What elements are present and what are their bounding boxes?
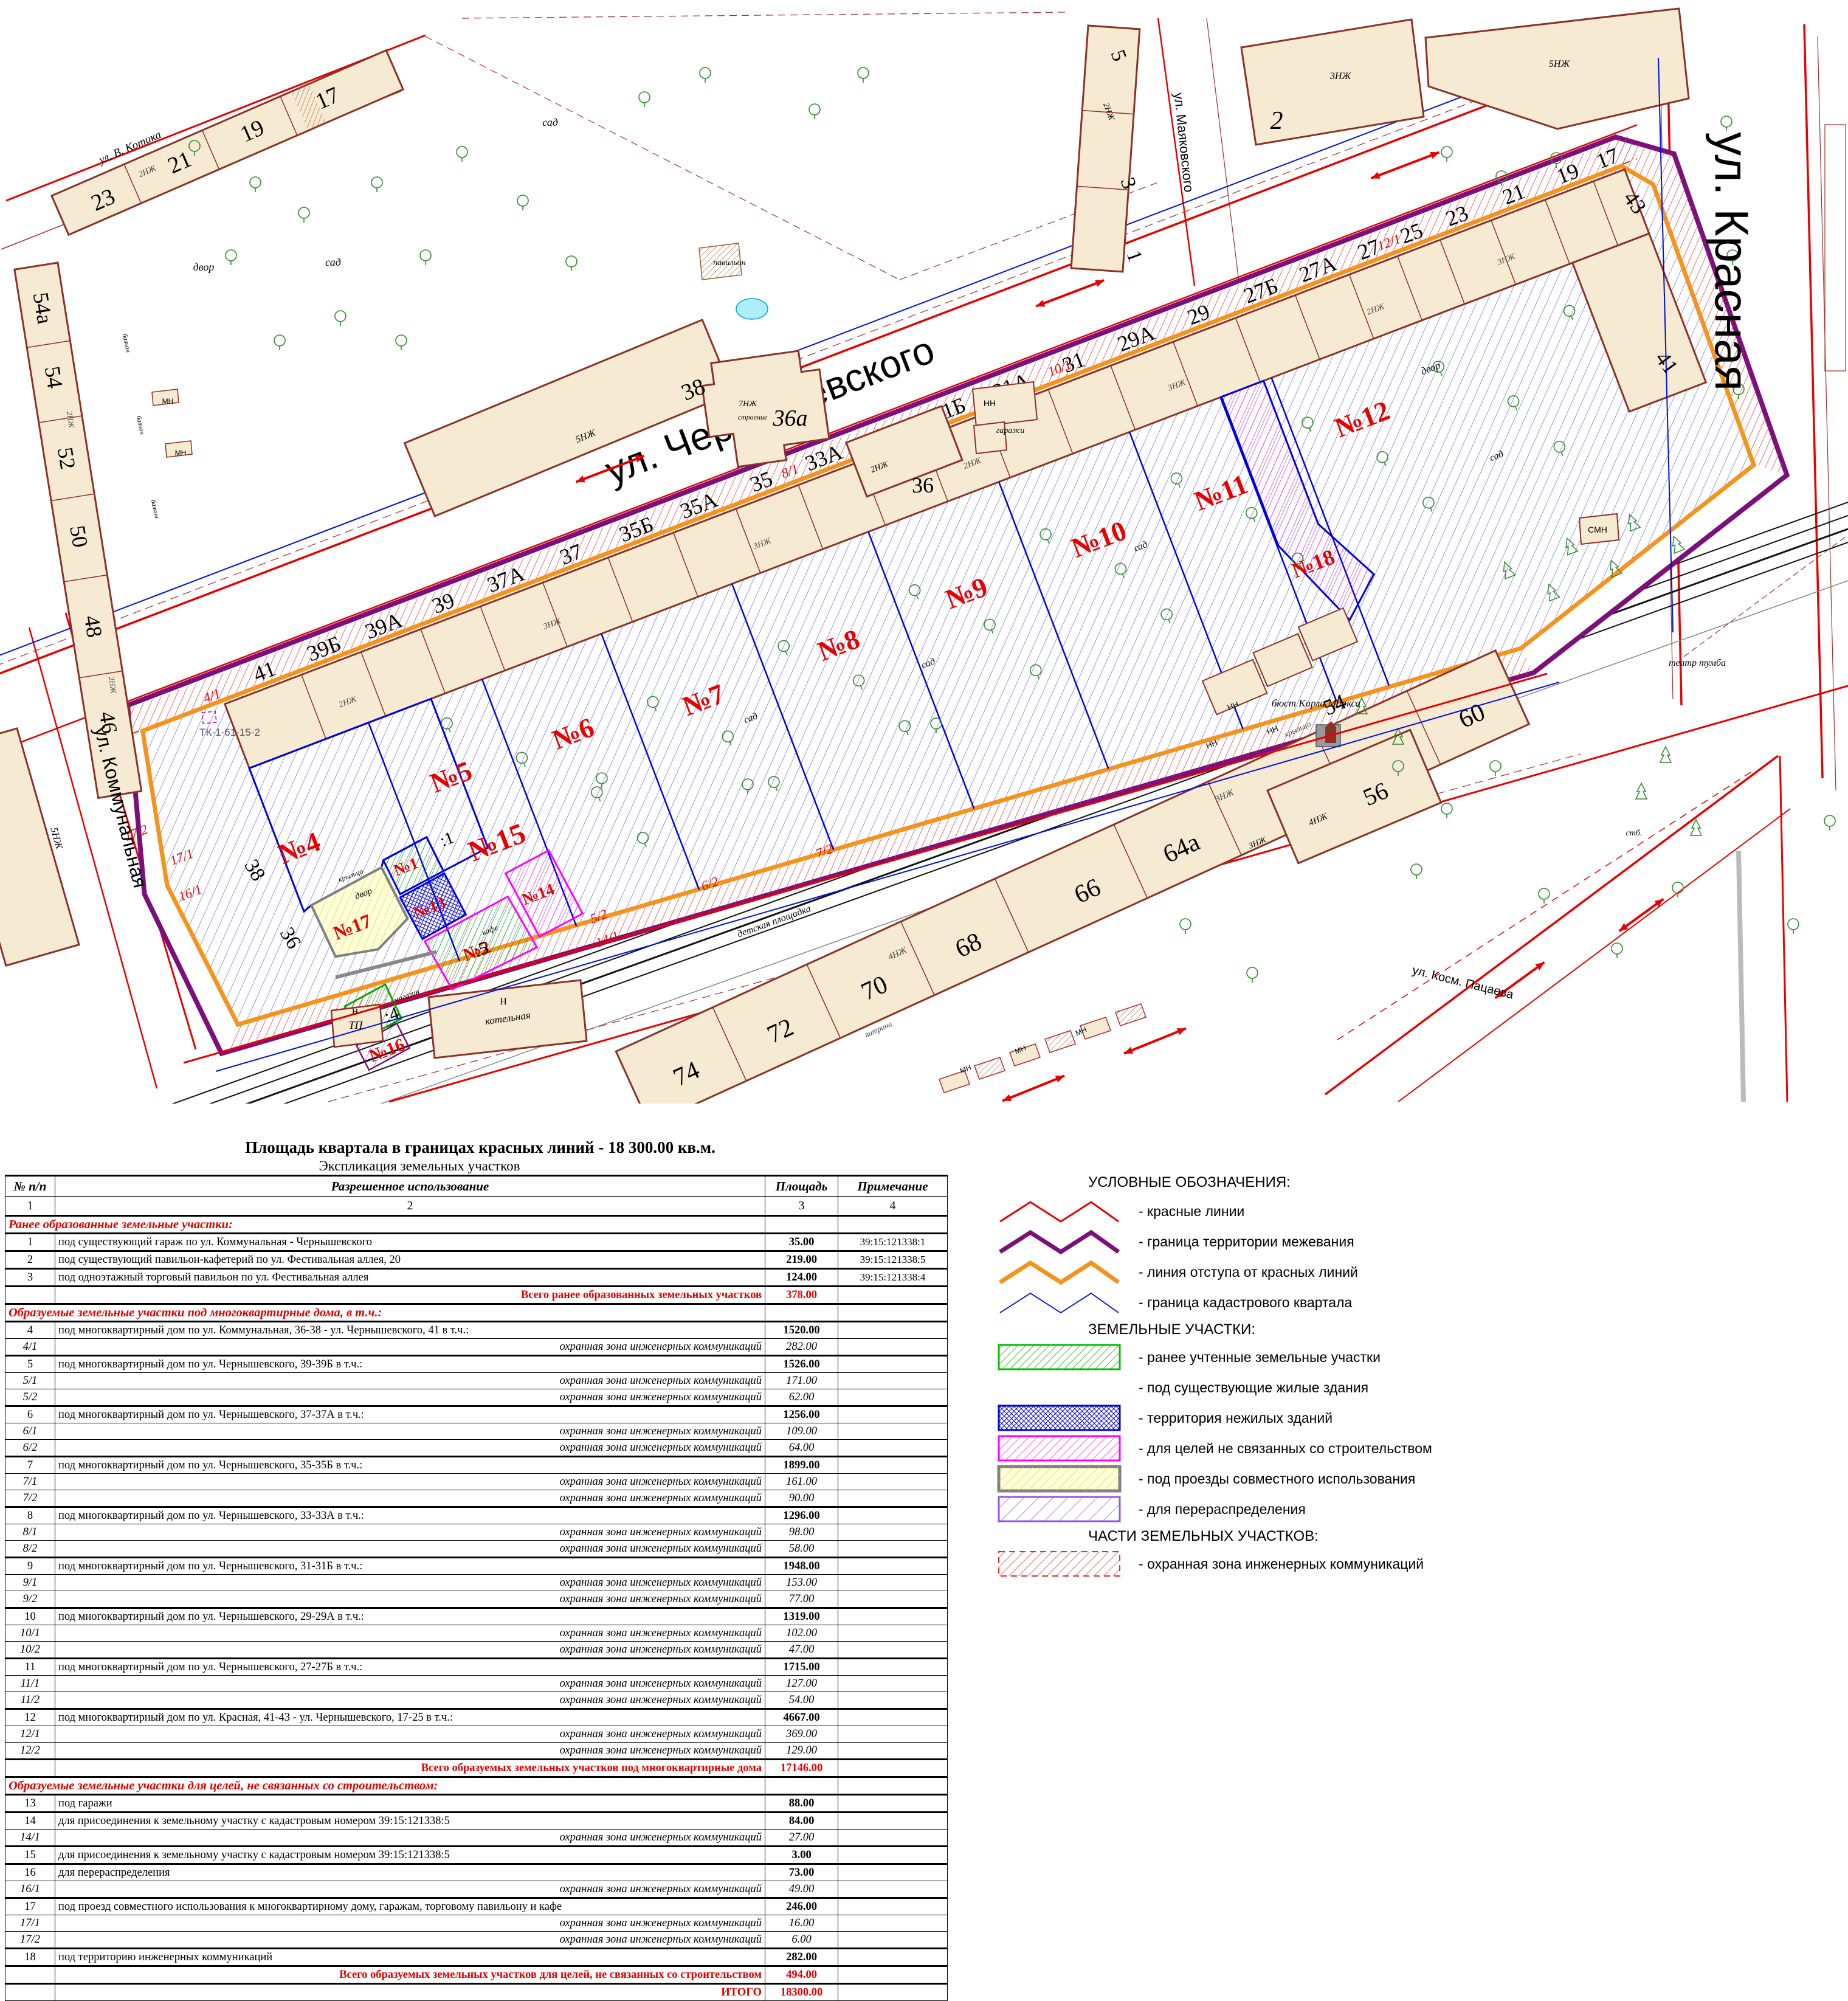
- map-shape: [1055, 1073, 1066, 1082]
- map-small-label: павильон: [713, 258, 746, 268]
- table-row: 9/1охранная зона инженерных коммуникаций…: [5, 1575, 948, 1591]
- map-shape: [1071, 26, 1140, 272]
- map-small-label: Н: [500, 997, 507, 1007]
- buildings-5-3-1: [1071, 26, 1140, 272]
- tree-icon: [298, 207, 309, 223]
- map-small-label: МН: [162, 397, 174, 406]
- map-line: [1371, 152, 1439, 178]
- legend-subtitle: ЗЕМЕЛЬНЫЕ УЧАСТКИ:: [1088, 1321, 1520, 1338]
- table-row: 14для присоединения к земельному участку…: [5, 1813, 948, 1830]
- table-row: 4под многоквартирный дом по ул. Коммунал…: [5, 1322, 948, 1339]
- map-small-label: 5НЖ: [1549, 59, 1571, 69]
- mn-box: [939, 1071, 970, 1093]
- legend-item: - под проезды совместного использования: [997, 1465, 1520, 1493]
- legend-label: - линия отступа от красных линий: [1139, 1264, 1358, 1280]
- map-line: [1780, 756, 1787, 1102]
- map-small-label: ТП: [348, 1019, 363, 1031]
- tree-icon: [1612, 943, 1622, 958]
- table-row: 2под существующий павильон-кафетерий по …: [5, 1251, 948, 1269]
- table-row: Всего образуемых земельных участков для …: [5, 1966, 948, 1984]
- map-small-label: детская площадка: [736, 904, 812, 939]
- tree-icon: [566, 256, 577, 271]
- table-row: ИТОГО18300.00: [5, 1984, 948, 2001]
- table-row: Образуемые земельные участки под многокв…: [5, 1304, 948, 1322]
- legend-swatch-blue-cross: [997, 1404, 1122, 1432]
- table-row: 5/2охранная зона инженерных коммуникаций…: [5, 1389, 948, 1406]
- legend-item: - граница территории межевания: [997, 1228, 1520, 1256]
- tree-icon: [335, 311, 346, 326]
- table-row: 5/1охранная зона инженерных коммуникаций…: [5, 1373, 948, 1389]
- table-row: 9/2охранная зона инженерных коммуникаций…: [5, 1591, 948, 1608]
- table-row: 10/1охранная зона инженерных коммуникаци…: [5, 1625, 948, 1642]
- map-small-label: стб.: [1626, 829, 1643, 838]
- land-plots-table: № п/пРазрешенное использованиеПлощадьПри…: [5, 1175, 948, 2001]
- legend-no-swatch: [997, 1374, 1122, 1401]
- section-header: Образуемые земельные участки для целей, …: [5, 1777, 765, 1795]
- table-row: № п/пРазрешенное использованиеПлощадьПри…: [5, 1176, 948, 1197]
- tree-icon: [226, 250, 236, 265]
- tree-icon: [1721, 116, 1732, 131]
- map-small-label: балкон: [121, 333, 132, 354]
- table-row: 7/1охранная зона инженерных коммуникаций…: [5, 1474, 948, 1490]
- legend-label: - красные линии: [1139, 1203, 1244, 1220]
- tree-icon: [250, 177, 261, 192]
- direction-arrow: [1370, 149, 1440, 182]
- direction-arrow: [1123, 1025, 1187, 1057]
- block-area-title: Площадь квартала в границах красных лини…: [146, 1138, 815, 1157]
- map-line: [1398, 809, 1790, 1102]
- street-patsaeva: ул. Косм. Пацаева: [1411, 964, 1515, 1002]
- table-row: 11/2охранная зона инженерных коммуникаци…: [5, 1692, 948, 1709]
- table-row: 3под одноэтажный торговый павильон по ул…: [5, 1269, 948, 1287]
- building-38: [405, 320, 733, 516]
- cadastral-map: ул. Чернышевскогоул. Фестивальная аллея4…: [0, 0, 1848, 1104]
- map-small-label: театр тумба: [1669, 658, 1726, 668]
- table-row: 6/2охранная зона инженерных коммуникаций…: [5, 1440, 948, 1457]
- map-shape: [405, 320, 733, 516]
- table-row: 12/1охранная зона инженерных коммуникаци…: [5, 1726, 948, 1743]
- map-shape: [1095, 277, 1105, 286]
- tree-icon: [371, 177, 382, 192]
- table-title: Экспликация земельных участков: [146, 1158, 693, 1174]
- table-row: 1234: [5, 1197, 948, 1216]
- table-row: 10/2охранная зона инженерных коммуникаци…: [5, 1642, 948, 1659]
- legend-swatch-zig-purple: [997, 1228, 1122, 1256]
- map-line: [1739, 851, 1743, 1102]
- table-row: 1под существующий гараж по ул. Коммуналь…: [5, 1234, 948, 1251]
- table-row: 16для перераспределения73.00: [5, 1864, 948, 1881]
- street-krasnaya: ул. Красная: [1705, 132, 1759, 391]
- legend-swatch-yellow-fill: [997, 1465, 1122, 1493]
- map-shape: [1430, 149, 1440, 159]
- map-small-label: 3НЖ: [1329, 71, 1352, 81]
- legend-subtitle: ЧАСТИ ЗЕМЕЛЬНЫХ УЧАСТКОВ:: [1088, 1528, 1520, 1545]
- tree-icon: [1441, 147, 1452, 162]
- fir-icon: [1691, 820, 1701, 835]
- legend-item: - охранная зона инженерных коммуникаций: [997, 1550, 1520, 1578]
- section-header: Образуемые земельные участки под многокв…: [5, 1304, 765, 1322]
- table-row: 14/1охранная зона инженерных коммуникаци…: [5, 1830, 948, 1847]
- table-row: 11под многоквартирный дом по ул. Черныше…: [5, 1659, 948, 1676]
- table-row: 17/1охранная зона инженерных коммуникаци…: [5, 1915, 948, 1932]
- house-number: 48: [80, 613, 107, 639]
- legend-item: - красные линии: [997, 1197, 1520, 1225]
- legend-swatch-green-hatch: [997, 1343, 1122, 1371]
- map-line: [1036, 280, 1104, 306]
- table-row: 6под многоквартирный дом по ул. Чернышев…: [5, 1406, 948, 1423]
- building-2: [1241, 19, 1424, 145]
- tree-icon: [1247, 967, 1258, 983]
- table-row: 9под многоквартирный дом по ул. Чернышев…: [5, 1558, 948, 1575]
- map-small-label: сад: [325, 256, 341, 268]
- map-shape: [1035, 300, 1045, 309]
- map-small-label: 36а: [773, 406, 808, 431]
- table-row: Образуемые земельные участки для целей, …: [5, 1777, 948, 1795]
- legend-label: - для целей не связанных со строительств…: [1139, 1440, 1432, 1457]
- legend-item: - ранее учтенные земельные участки: [997, 1343, 1520, 1371]
- table-row: 17/2охранная зона инженерных коммуникаци…: [5, 1932, 948, 1949]
- map-shape: [574, 475, 585, 485]
- cadastral-survey-sheet: { "summary": { "block_area_title": "Площ…: [0, 0, 1848, 1942]
- tree-icon: [457, 147, 467, 162]
- legend-swatch-red-dash-hatch: [997, 1550, 1122, 1578]
- legend-swatch-purple-hatch: [997, 1495, 1122, 1523]
- tree-icon: [858, 67, 869, 83]
- fir-icon: [1660, 747, 1671, 762]
- table-row: 8/2охранная зона инженерных коммуникаций…: [5, 1541, 948, 1558]
- map-small-label: 1: [1122, 247, 1147, 265]
- house-number: 54а: [29, 291, 58, 326]
- legend-swatch-zig-red: [997, 1197, 1122, 1225]
- tree-icon: [1490, 761, 1501, 776]
- mn-box: [1115, 1004, 1146, 1026]
- direction-arrow: [1001, 1073, 1066, 1104]
- house-number: 52: [53, 446, 80, 471]
- pond: [736, 299, 768, 319]
- tree-icon: [700, 67, 711, 83]
- map-line: [1684, 535, 1848, 657]
- legend-label: - под существующие жилые здания: [1139, 1380, 1368, 1396]
- map-small-label: 2: [1270, 107, 1283, 135]
- legend-label: - ранее учтенные земельные участки: [1139, 1349, 1381, 1366]
- legend-item: - под существующие жилые здания: [997, 1374, 1520, 1401]
- tree-icon: [396, 335, 407, 350]
- tree-icon: [639, 92, 650, 107]
- tree-icon: [809, 104, 820, 119]
- tree-icon: [1180, 919, 1191, 934]
- tree-icon: [274, 335, 285, 350]
- map-line: [1124, 1028, 1186, 1053]
- table-row: 17под проезд совместного использования к…: [5, 1898, 948, 1915]
- legend-title: УСЛОВНЫЕ ОБОЗНАЧЕНИЯ:: [1088, 1174, 1520, 1191]
- table-row: 13под гаражи88.00: [5, 1795, 948, 1813]
- tree-icon: [1411, 864, 1422, 879]
- left-column-buildings: 54а54525048462НЖ2НЖ: [15, 263, 142, 798]
- park-outline: [1825, 125, 1846, 371]
- table-row: 12/2охранная зона инженерных коммуникаци…: [5, 1743, 948, 1760]
- legend-item: - территория нежилых зданий: [997, 1404, 1520, 1432]
- map-small-label: СМН: [1588, 525, 1607, 534]
- direction-arrow: [1035, 277, 1105, 309]
- map-small-label: двор: [193, 261, 215, 273]
- table-row: 10под многоквартирный дом по ул. Черныше…: [5, 1608, 948, 1625]
- table-row: 7под многоквартирный дом по ул. Чернышев…: [5, 1457, 948, 1474]
- table-row: 4/1охранная зона инженерных коммуникаций…: [5, 1339, 948, 1356]
- kotika-buildings: 232119172НЖул. В. Котика: [44, 32, 403, 235]
- map-line: [1207, 18, 1240, 292]
- fir-icon: [1636, 783, 1647, 799]
- map-small-label: балкон: [135, 415, 146, 436]
- garages: [973, 382, 1037, 427]
- table-row: 8/1охранная зона инженерных коммуникаций…: [5, 1524, 948, 1541]
- map-shape: [1370, 172, 1380, 182]
- tree-icon: [1788, 919, 1799, 934]
- tree-icon: [1539, 888, 1550, 904]
- legend-label: - охранная зона инженерных коммуникаций: [1139, 1556, 1424, 1572]
- tree-icon: [420, 250, 431, 265]
- map-shape: [1123, 1047, 1133, 1057]
- direction-arrow: [1617, 896, 1666, 935]
- map-line: [426, 36, 900, 280]
- legend-swatch-zig-blue: [997, 1288, 1122, 1316]
- legend-label: - территория нежилых зданий: [1139, 1410, 1333, 1426]
- table-row: Всего образуемых земельных участков под …: [5, 1760, 948, 1777]
- table-row: 8под многоквартирный дом по ул. Чернышев…: [5, 1507, 948, 1524]
- map-line: [1002, 1076, 1064, 1101]
- tree-icon: [1441, 803, 1452, 818]
- section-header: Ранее образованные земельные участки:: [5, 1216, 765, 1234]
- table-row: 18под территорию инженерных коммуникаций…: [5, 1949, 948, 1966]
- table-row: 11/1охранная зона инженерных коммуникаци…: [5, 1676, 948, 1692]
- map-small-label: МН: [959, 1063, 973, 1075]
- legend-swatch-zig-orange: [997, 1258, 1122, 1286]
- map-small-label: МН: [175, 449, 187, 457]
- map-small-label: строение: [738, 413, 768, 421]
- tree-icon: [1824, 815, 1835, 831]
- legend-label: - граница кадастрового квартала: [1139, 1294, 1352, 1311]
- map-small-label: 7НЖ: [739, 399, 757, 409]
- mn-box: [1045, 1031, 1075, 1052]
- map-small-label: гаражи: [996, 426, 1024, 435]
- legend-label: - под проезды совместного использования: [1139, 1471, 1415, 1487]
- map-shape: [1177, 1025, 1187, 1035]
- map-small-label: 36: [912, 473, 934, 497]
- table-row: Всего ранее образованных земельных участ…: [5, 1287, 948, 1304]
- map-small-label: Н: [352, 1007, 358, 1017]
- house-number: 50: [65, 524, 92, 549]
- legend-swatch-magenta-hatch: [997, 1434, 1122, 1462]
- legend-item: - для перераспределения: [997, 1495, 1520, 1523]
- legend-label: - для перераспределения: [1139, 1501, 1306, 1518]
- table-row: 12под многоквартирный дом по ул. Красная…: [5, 1709, 948, 1726]
- map-legend: УСЛОВНЫЕ ОБОЗНАЧЕНИЯ: - красные линии- г…: [997, 1170, 1520, 1580]
- legend-item: - для целей не связанных со строительств…: [997, 1434, 1520, 1462]
- legend-item: - линия отступа от красных линий: [997, 1258, 1520, 1286]
- table-row: 15для присоединения к земельному участку…: [5, 1847, 948, 1864]
- table-row: 6/1охранная зона инженерных коммуникаций…: [5, 1423, 948, 1440]
- map-shape: [1001, 1094, 1012, 1104]
- table-row: 5под многоквартирный дом по ул. Чернышев…: [5, 1356, 948, 1373]
- legend-item: - граница кадастрового квартала: [997, 1288, 1520, 1316]
- table-row: 7/2охранная зона инженерных коммуникаций…: [5, 1490, 948, 1507]
- tree-icon: [517, 195, 528, 210]
- mn-box: [974, 1057, 1005, 1079]
- map-line: [462, 12, 1070, 18]
- map-small-label: НН: [984, 398, 996, 408]
- map-small-label: сад: [542, 116, 558, 128]
- legend-label: - граница территории межевания: [1139, 1234, 1354, 1250]
- table-row: 16/1охранная зона инженерных коммуникаци…: [5, 1881, 948, 1898]
- map-small-label: ТК-1-61-15-2: [199, 727, 260, 738]
- table-row: Ранее образованные земельные участки:: [5, 1216, 948, 1234]
- map-small-label: балкон: [150, 499, 160, 520]
- house-number: 54: [40, 364, 67, 390]
